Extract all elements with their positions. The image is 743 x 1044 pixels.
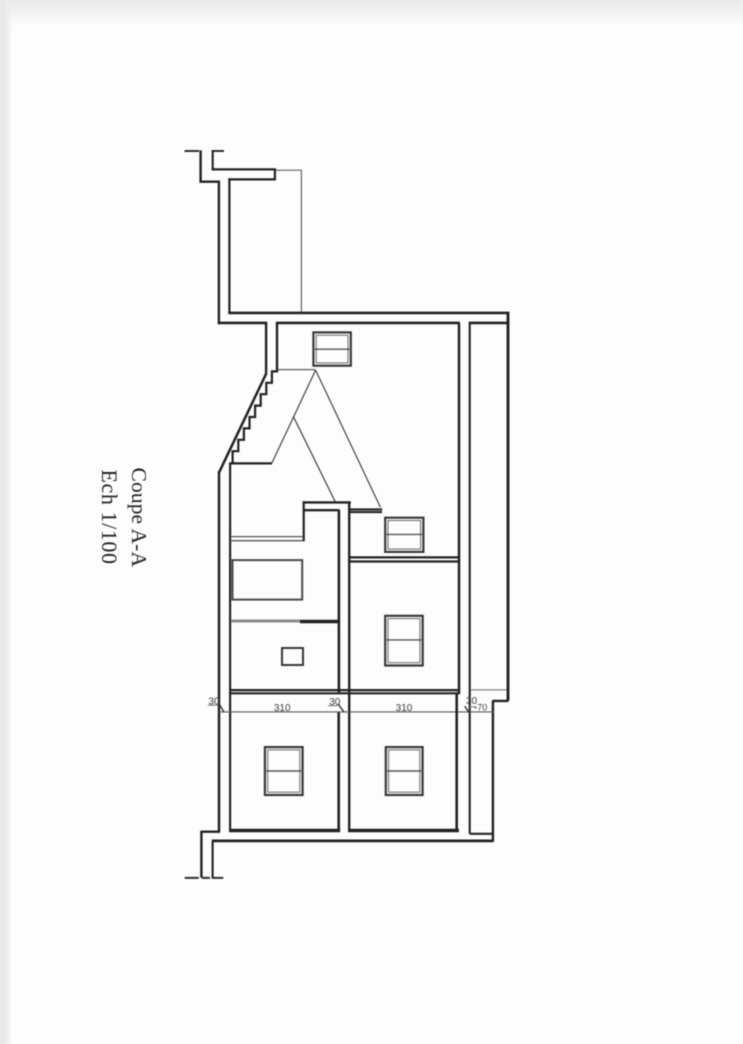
svg-text:30: 30 (329, 697, 341, 708)
svg-text:Coupe A-A: Coupe A-A (127, 468, 151, 568)
svg-text:310: 310 (396, 703, 413, 714)
svg-text:30: 30 (208, 696, 220, 707)
svg-text:-70: -70 (474, 702, 487, 712)
svg-text:310: 310 (274, 703, 291, 714)
svg-text:Ech 1/100: Ech 1/100 (97, 470, 122, 565)
